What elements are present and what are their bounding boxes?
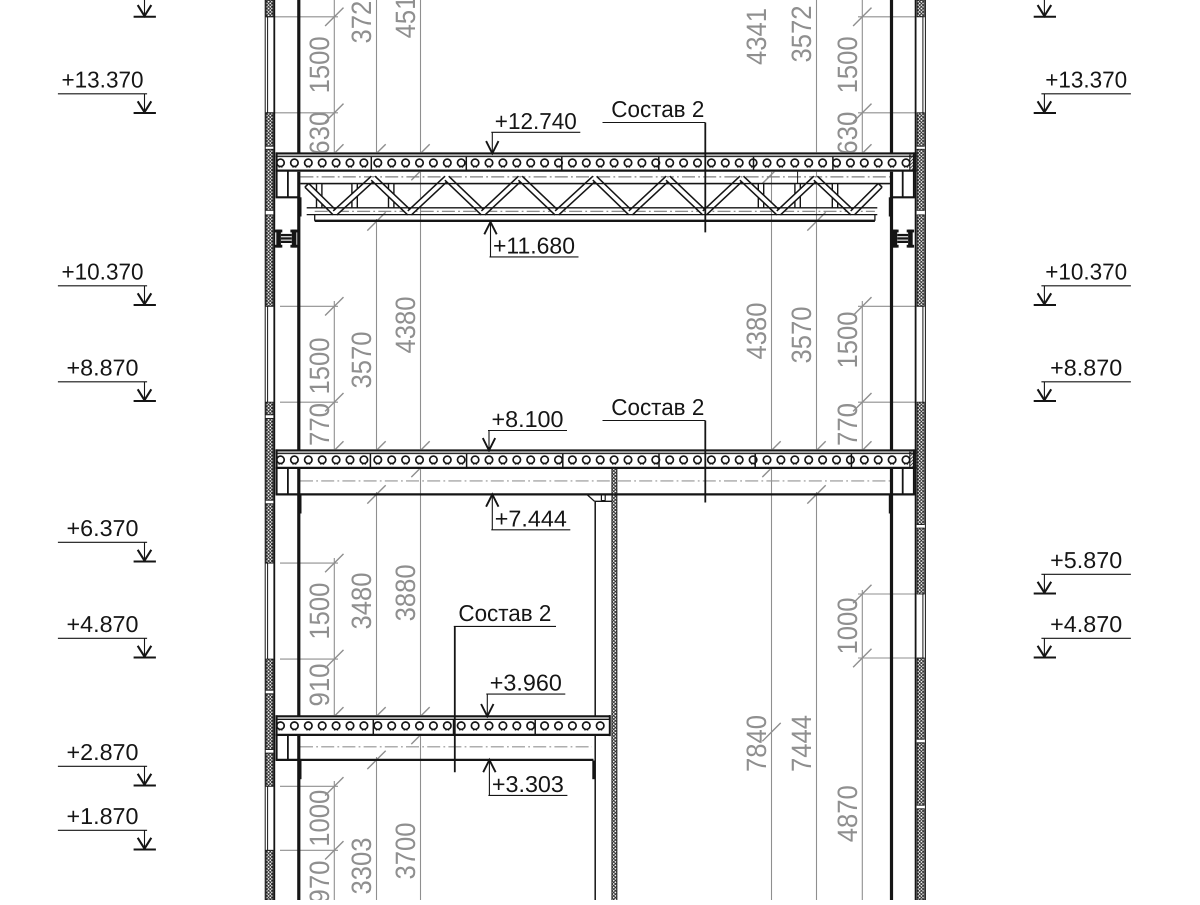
svg-text:3880: 3880 bbox=[390, 564, 421, 621]
svg-text:+13.370: +13.370 bbox=[62, 66, 144, 92]
svg-text:1500: 1500 bbox=[304, 583, 335, 640]
svg-text:3570: 3570 bbox=[786, 307, 817, 364]
svg-text:770: 770 bbox=[832, 403, 863, 446]
svg-text:Состав 2: Состав 2 bbox=[611, 96, 704, 122]
svg-text:+10.370: +10.370 bbox=[62, 258, 144, 284]
svg-text:3572: 3572 bbox=[786, 6, 817, 63]
svg-text:1000: 1000 bbox=[832, 598, 863, 655]
svg-text:+7.444: +7.444 bbox=[495, 505, 567, 531]
svg-text:+2.870: +2.870 bbox=[67, 739, 139, 765]
svg-text:+6.370: +6.370 bbox=[67, 515, 139, 541]
svg-text:3570: 3570 bbox=[346, 332, 377, 389]
svg-text:+8.870: +8.870 bbox=[1050, 354, 1122, 380]
svg-text:+5.870: +5.870 bbox=[1050, 547, 1122, 573]
svg-text:+4.870: +4.870 bbox=[67, 611, 139, 637]
svg-text:+11.680: +11.680 bbox=[493, 232, 575, 258]
svg-text:3720: 3720 bbox=[346, 0, 377, 44]
svg-text:+12.740: +12.740 bbox=[495, 108, 577, 134]
svg-text:1500: 1500 bbox=[832, 36, 863, 93]
svg-text:1500: 1500 bbox=[304, 338, 335, 395]
svg-text:+4.870: +4.870 bbox=[1050, 611, 1122, 637]
svg-text:+1.870: +1.870 bbox=[67, 803, 139, 829]
svg-text:4380: 4380 bbox=[741, 303, 772, 360]
svg-text:7444: 7444 bbox=[786, 715, 817, 772]
svg-text:+8.870: +8.870 bbox=[67, 354, 139, 380]
svg-text:+13.370: +13.370 bbox=[1045, 66, 1127, 92]
svg-text:4380: 4380 bbox=[390, 297, 421, 354]
svg-text:Состав 2: Состав 2 bbox=[458, 600, 551, 626]
svg-text:1500: 1500 bbox=[304, 36, 335, 93]
svg-text:Состав 2: Состав 2 bbox=[611, 394, 704, 420]
svg-text:1500: 1500 bbox=[832, 312, 863, 369]
svg-text:910: 910 bbox=[304, 664, 335, 707]
svg-text:3700: 3700 bbox=[390, 823, 421, 880]
svg-text:3480: 3480 bbox=[346, 573, 377, 630]
svg-text:970: 970 bbox=[304, 861, 335, 901]
svg-text:+3.960: +3.960 bbox=[490, 670, 562, 696]
svg-text:630: 630 bbox=[832, 112, 863, 155]
svg-text:3303: 3303 bbox=[346, 838, 377, 895]
svg-text:1000: 1000 bbox=[304, 790, 335, 847]
svg-text:+3.303: +3.303 bbox=[492, 771, 564, 797]
svg-text:+10.370: +10.370 bbox=[1045, 258, 1127, 284]
svg-text:+8.100: +8.100 bbox=[492, 406, 564, 432]
svg-text:4510: 4510 bbox=[390, 0, 421, 38]
svg-text:4870: 4870 bbox=[832, 785, 863, 842]
svg-text:7840: 7840 bbox=[741, 715, 772, 772]
svg-text:4341: 4341 bbox=[741, 8, 772, 65]
svg-text:770: 770 bbox=[304, 403, 335, 446]
svg-text:630: 630 bbox=[304, 112, 335, 155]
